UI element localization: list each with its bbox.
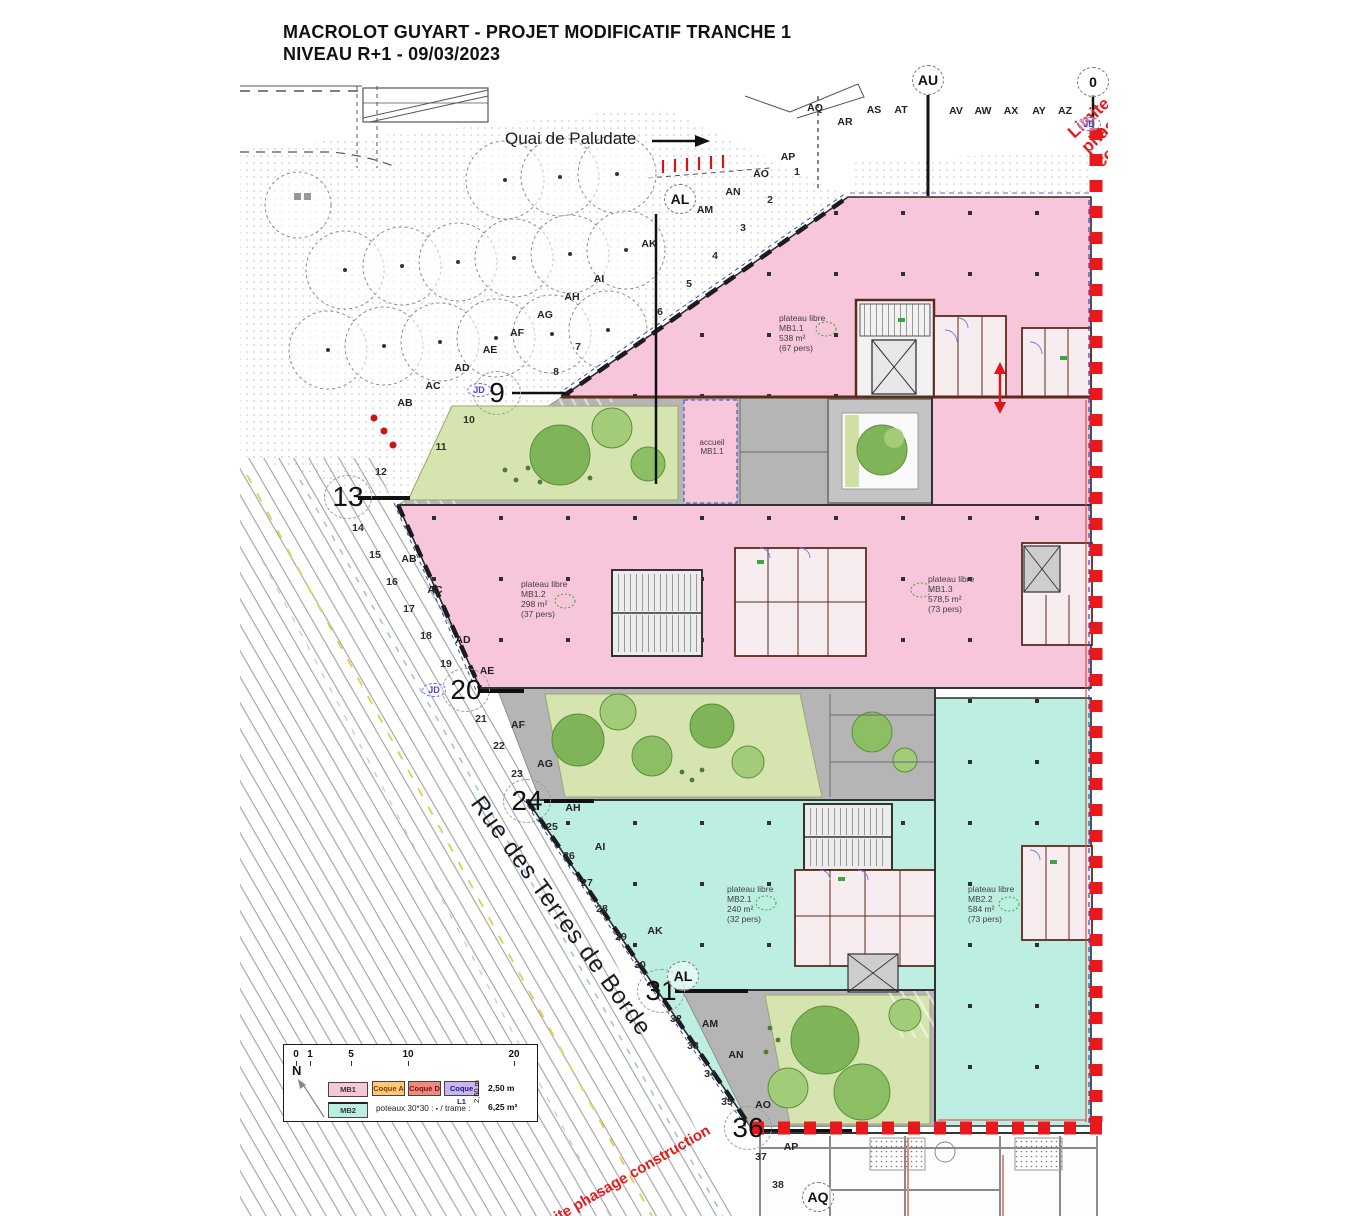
grid-letter: AF: [511, 719, 525, 731]
grid-letter: AE: [483, 344, 498, 356]
grid-letter: AG: [537, 309, 553, 321]
grid-number: 27: [581, 877, 593, 889]
grid-number: 30: [634, 959, 646, 971]
grid-number: 8: [553, 366, 559, 378]
grid-letter: AM: [697, 204, 713, 216]
grid-number: 5: [686, 278, 692, 290]
zone-label-mb12: plateau libreMB1.2 298 m²(37 pers): [521, 579, 567, 619]
grid-number: 32: [670, 1013, 682, 1025]
scale-20: 20: [508, 1049, 519, 1060]
grid-number: 34: [704, 1068, 716, 1080]
grid-number: 28: [596, 903, 608, 915]
grid-number: 29: [615, 931, 627, 943]
grid-number: 26: [563, 850, 575, 862]
grid-number: 17: [403, 603, 415, 615]
grid-letter: AM: [702, 1018, 718, 1030]
grid-circled-label: AQ: [802, 1182, 834, 1212]
grid-number: 25: [546, 821, 558, 833]
grid-letter: AY: [1032, 105, 1046, 117]
grid-letter: AB: [401, 553, 416, 565]
grid-number: 4: [712, 250, 718, 262]
grid-number: 14: [352, 522, 364, 534]
legend-swatch-coque-a: Coque A: [372, 1081, 405, 1096]
grid-number: 18: [420, 630, 432, 642]
grid-circled-label: AL: [667, 961, 699, 991]
grid-big-number: 20: [450, 674, 481, 706]
grid-number: 12: [375, 466, 387, 478]
grid-number: 21: [475, 713, 487, 725]
grid-number: 37: [755, 1151, 767, 1163]
grid-big-number: 36: [732, 1112, 763, 1144]
grid-number: 16: [386, 576, 398, 588]
legend-swatch-coque-d: Coque D: [408, 1081, 441, 1096]
grid-number: 11: [435, 441, 446, 453]
jd-marker: JD: [467, 383, 491, 397]
column-square-icon: ▪: [436, 1106, 438, 1113]
street-label-quai: Quai de Paludate: [505, 129, 636, 149]
grid-circled-label: AU: [912, 65, 944, 95]
grid-letter: AI: [595, 841, 606, 853]
grid-letter: AI: [594, 273, 605, 285]
grid-number: 1: [794, 166, 800, 178]
grid-number: 35: [721, 1096, 733, 1108]
grid-number: 10: [463, 414, 475, 426]
grid-letter: AG: [537, 758, 553, 770]
grid-big-number: 24: [511, 785, 542, 817]
grid-letter: AH: [565, 802, 580, 814]
grid-big-number: 9: [489, 377, 505, 409]
floor-plan-canvas: MACROLOT GUYART - PROJET MODIFICATIF TRA…: [0, 0, 1350, 1216]
grid-letter: AP: [784, 1141, 799, 1153]
legend-dim-2: 6,25 m²: [488, 1102, 517, 1112]
grid-letter: AK: [647, 925, 662, 937]
grid-circled-label: 0: [1077, 67, 1109, 97]
grid-number: 22: [493, 740, 505, 752]
grid-letter: AQ: [807, 102, 823, 114]
grid-letter: AN: [725, 186, 740, 198]
grid-number: 7: [575, 341, 581, 353]
grid-letter: AR: [837, 116, 852, 128]
plan-title: MACROLOT GUYART - PROJET MODIFICATIF TRA…: [283, 22, 791, 43]
zone-label-mb11: plateau libreMB1.1 538 m²(67 pers): [779, 313, 825, 353]
grid-letter: AT: [894, 104, 907, 116]
grid-number: 6: [657, 306, 663, 318]
grid-letter: AD: [455, 634, 470, 646]
grid-circled-label: AL: [664, 184, 696, 214]
legend-dim-1: 2,50 m: [488, 1083, 514, 1093]
accueil-label: accueilMB1.1: [686, 438, 738, 456]
jd-marker: JD: [422, 683, 446, 697]
grid-big-number: 13: [332, 481, 363, 513]
grid-letter: AC: [425, 380, 440, 392]
grid-number: 15: [369, 549, 381, 561]
grid-letter: AV: [949, 105, 963, 117]
grid-letter: AK: [641, 238, 656, 250]
grid-letter: AC: [427, 584, 442, 596]
zone-label-mb13: plateau libreMB1.3 578,5 m²(73 pers): [928, 574, 974, 614]
grid-number: 19: [440, 658, 452, 670]
legend-swatch-mb2: MB2: [328, 1102, 368, 1118]
plan-drawing: [0, 0, 1350, 1216]
grid-number: 2: [767, 194, 773, 206]
grid-letter: AN: [728, 1049, 743, 1061]
scale-10: 10: [402, 1049, 413, 1060]
scale-5: 5: [348, 1049, 354, 1060]
grid-letter: AO: [753, 168, 769, 180]
grid-letter: AX: [1004, 105, 1019, 117]
grid-number: 33: [687, 1040, 699, 1052]
grid-letter: AF: [510, 327, 524, 339]
grid-letter: AP: [781, 151, 796, 163]
zone-label-mb21: plateau libreMB2.1 240 m²(32 pers): [727, 884, 773, 924]
grid-letter: AD: [454, 362, 469, 374]
grid-number: 23: [511, 768, 523, 780]
grid-letter: AZ: [1058, 105, 1072, 117]
scale-1: 1: [307, 1049, 313, 1060]
grid-letter: AB: [397, 397, 412, 409]
grid-letter: AH: [564, 291, 579, 303]
grid-letter: AW: [975, 105, 992, 117]
grid-number: 38: [772, 1179, 784, 1191]
scale-0: 0: [293, 1049, 299, 1060]
jd-marker: JD: [1077, 117, 1101, 131]
atrium: [828, 399, 932, 503]
legend-dim-rotated: 2,50 m: [472, 1080, 481, 1103]
north-label: N: [292, 1063, 301, 1078]
legend-swatch-mb1: MB1: [328, 1082, 368, 1097]
grid-number: 3: [740, 222, 746, 234]
grid-letter: AS: [867, 104, 882, 116]
plan-subtitle: NIVEAU R+1 - 09/03/2023: [283, 44, 500, 65]
legend-poteaux: poteaux 30*30 : ▪ / trame :: [376, 1104, 470, 1113]
zone-label-mb22: plateau libreMB2.2 584 m²(73 pers): [968, 884, 1014, 924]
legend-box: 0 1 5 10 20 N MB1 MB2 Coque A Coque D Co…: [283, 1044, 538, 1122]
